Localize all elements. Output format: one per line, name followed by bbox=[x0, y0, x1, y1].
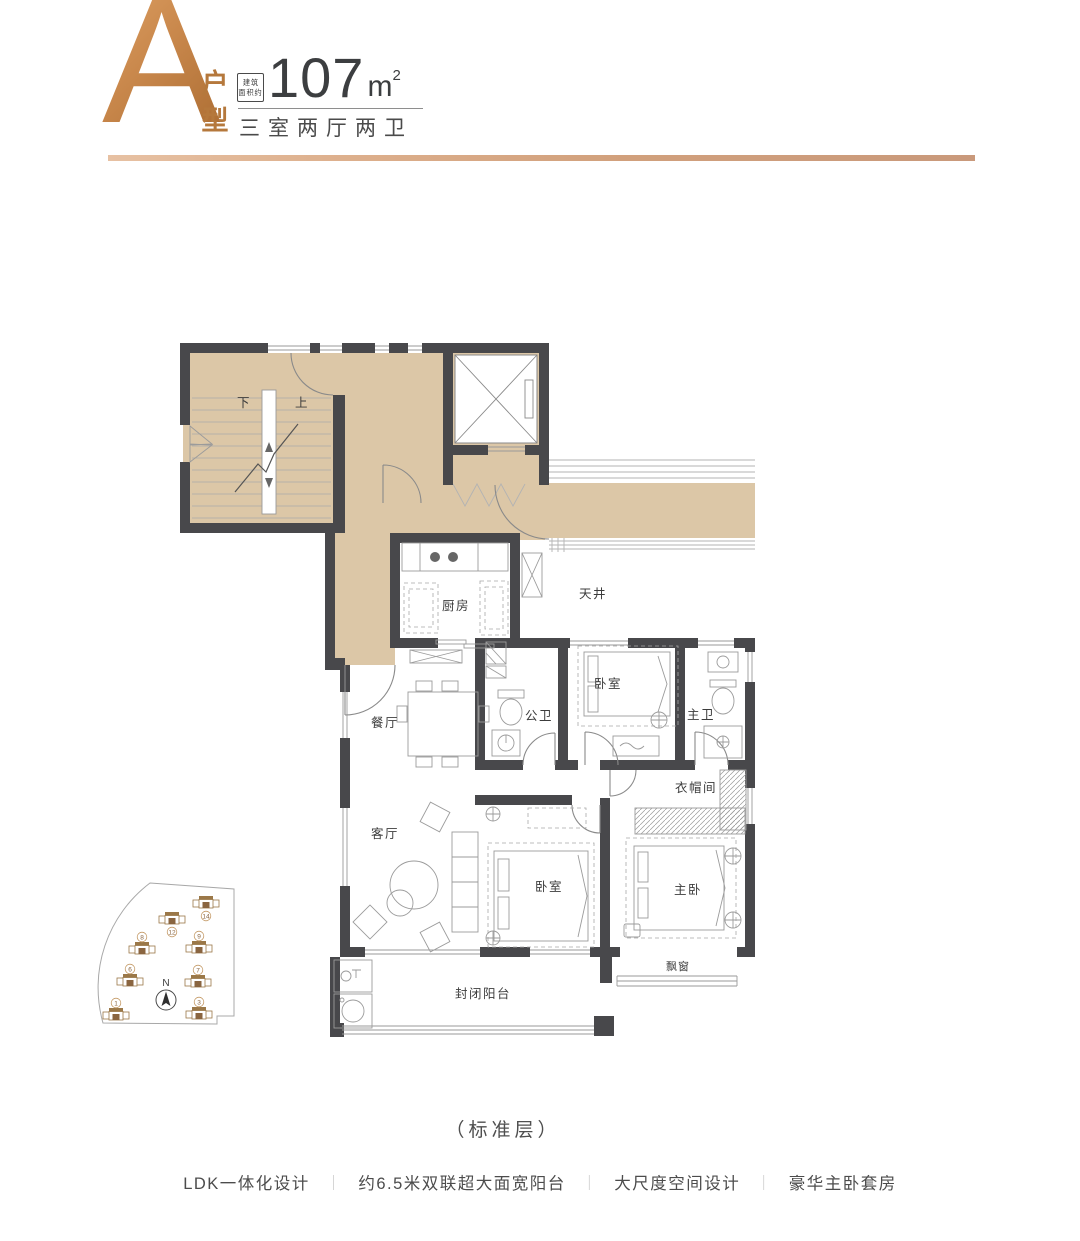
building-number: 6 bbox=[128, 966, 132, 973]
feature-item: 约6.5米双联超大面宽阳台 bbox=[358, 1170, 565, 1194]
floorplan-page: A 户型 建筑 面积约 107 m 2 三室两厅两卫 bbox=[0, 0, 1080, 1241]
building-number: 14 bbox=[202, 913, 210, 920]
room-label-bedroom-south: 卧室 bbox=[535, 879, 563, 894]
north-label: N bbox=[162, 978, 169, 989]
room-label-living: 客厅 bbox=[371, 826, 399, 841]
unit-type-label: 户型 bbox=[200, 66, 230, 140]
feature-item: 豪华主卧套房 bbox=[789, 1170, 897, 1194]
room-label-bedroom-north: 卧室 bbox=[594, 676, 622, 691]
room-label-dining: 餐厅 bbox=[371, 715, 399, 730]
layout-text: 三室两厅两卫 bbox=[239, 112, 413, 142]
room-label-master-bath: 主卫 bbox=[687, 708, 715, 722]
area-badge-line1: 建筑 bbox=[242, 78, 258, 87]
building-number: 8 bbox=[140, 934, 144, 941]
building-number: 7 bbox=[196, 967, 200, 974]
room-label-guest-bath: 公卫 bbox=[525, 709, 553, 723]
room-label-bay-window: 飘窗 bbox=[666, 959, 690, 973]
area-unit: m bbox=[367, 72, 392, 102]
feature-item: 大尺度空间设计 bbox=[614, 1170, 740, 1194]
stair-down-label: 下 bbox=[237, 396, 251, 410]
room-label-lightwell: 天井 bbox=[579, 587, 607, 601]
building-number: 3 bbox=[197, 999, 201, 1006]
building-number: 9 bbox=[197, 933, 201, 940]
feature-separator: ｜ bbox=[756, 1172, 773, 1193]
room-label-master-bedroom: 主卧 bbox=[674, 883, 702, 897]
site-key-plan: 1367891214 N bbox=[86, 878, 238, 1036]
area-underline bbox=[238, 108, 423, 109]
elevator bbox=[455, 355, 537, 443]
room-label-kitchen: 厨房 bbox=[442, 598, 470, 613]
feature-separator: ｜ bbox=[582, 1172, 599, 1193]
building-number: 1 bbox=[114, 1000, 118, 1007]
floor-plan: 下 上 厨房 天井 餐厅 公卫 卧室 主卫 客厅 卧室 衣帽间 主卧 封闭阳台 … bbox=[180, 340, 765, 1045]
area-badge: 建筑 面积约 bbox=[237, 73, 264, 102]
feature-separator: ｜ bbox=[326, 1172, 343, 1193]
floor-caption: （标准层） bbox=[0, 1115, 1006, 1142]
area-badge-line2: 面积约 bbox=[238, 88, 262, 97]
area-exponent: 2 bbox=[392, 68, 400, 83]
room-label-cloakroom: 衣帽间 bbox=[675, 780, 717, 795]
area-value-block: 107 m 2 bbox=[268, 50, 401, 106]
header-divider-line bbox=[108, 155, 975, 161]
building-number: 12 bbox=[168, 929, 176, 936]
room-label-balcony: 封闭阳台 bbox=[455, 986, 511, 1001]
area-value: 107 bbox=[268, 50, 364, 106]
feature-item: LDK一体化设计 bbox=[183, 1170, 310, 1194]
stair-up-label: 上 bbox=[295, 396, 309, 410]
features-bar: LDK一体化设计｜约6.5米双联超大面宽阳台｜大尺度空间设计｜豪华主卧套房 bbox=[0, 1170, 1080, 1194]
